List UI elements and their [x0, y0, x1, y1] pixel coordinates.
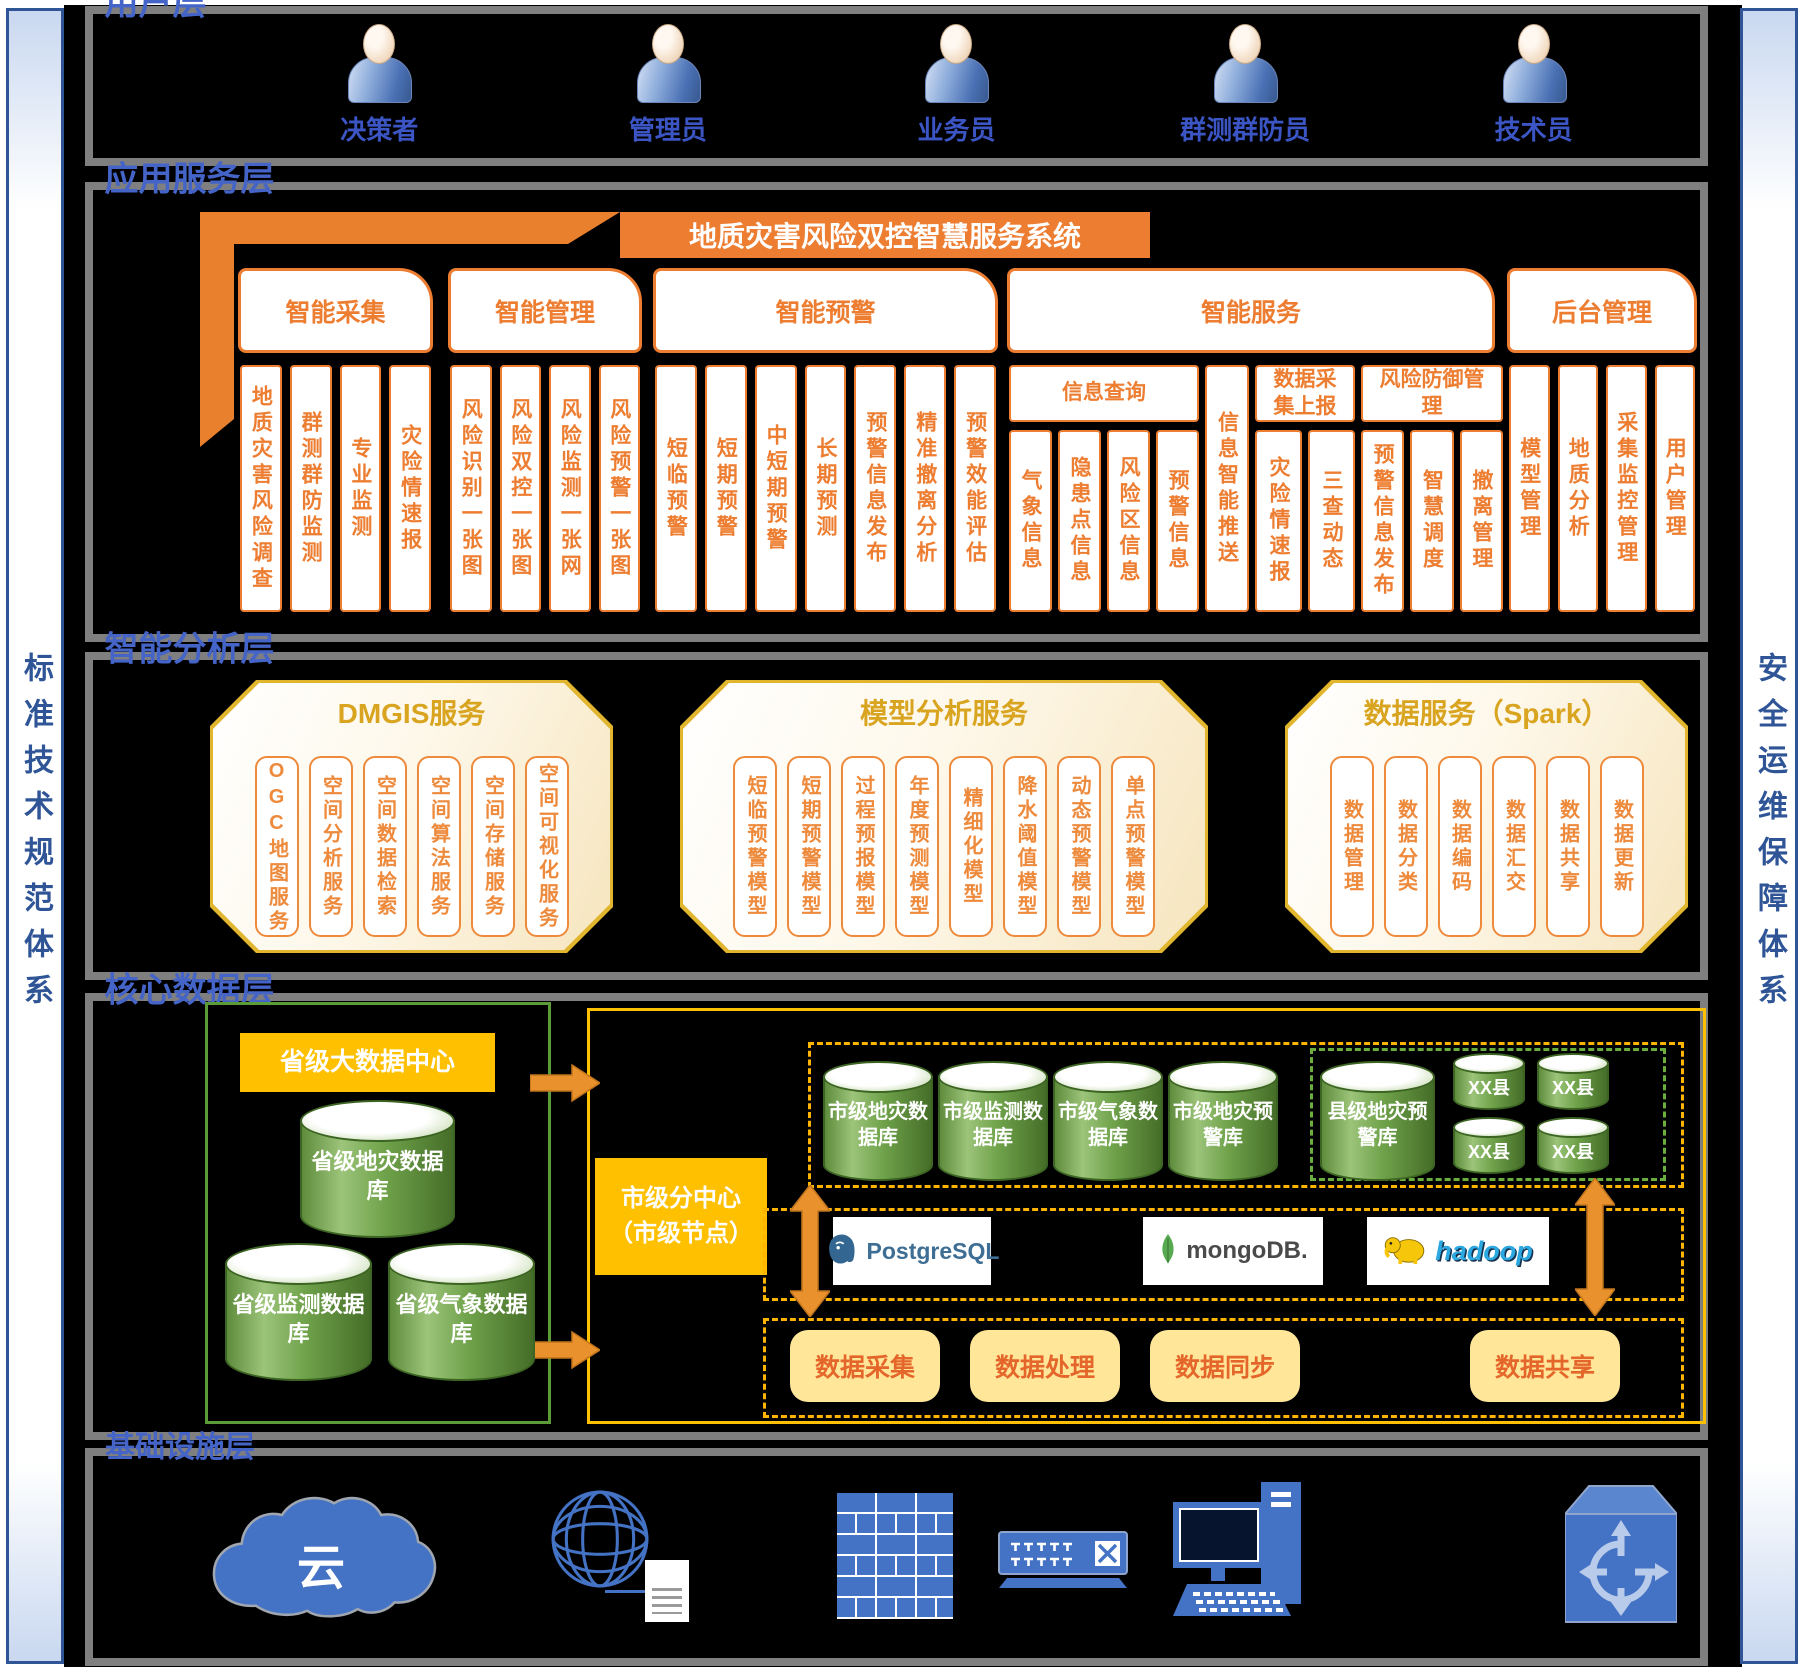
middleware-glyph-icon	[1158, 1231, 1178, 1272]
analysis-item-label: 数据分类	[1396, 799, 1416, 895]
person-icon	[1214, 24, 1276, 100]
group-items: 风险识别一张图风险双控一张图风险监测一张网风险预警一张图	[450, 365, 640, 612]
service-item-label: 地质灾害风险调查	[250, 385, 271, 593]
analysis-item-label: 数据更新	[1612, 799, 1632, 895]
service-subitem-label: 信息智能推送	[1217, 411, 1238, 567]
user-label: 技术员	[1495, 110, 1573, 147]
analysis-panel-2: 模型分析服务短临预警模型短期预警模型过程预报模型年度预测模型精细化模型降水阈值模…	[680, 680, 1208, 953]
service-item-label: 短期预警	[715, 437, 736, 541]
subgroup-items: 信息智能推送	[1205, 365, 1249, 612]
service-item: 风险识别一张图	[450, 365, 492, 612]
service-item-label: 预警信息发布	[865, 411, 886, 567]
service-item: 采集监控管理	[1606, 365, 1647, 612]
province-weather-db: 省级气象数据库	[388, 1243, 535, 1381]
person-icon	[637, 24, 699, 100]
service-subitem-label: 风险区信息	[1118, 456, 1139, 586]
service-item-label: 地质分析	[1567, 437, 1588, 541]
analysis-item: 数据汇交	[1492, 756, 1536, 937]
person-icon	[925, 24, 987, 100]
process-box-3: 数据同步	[1150, 1330, 1300, 1402]
user-1: 决策者	[304, 24, 454, 154]
service-item: 用户管理	[1655, 365, 1696, 612]
middleware-name: hadoop	[1435, 1236, 1532, 1267]
analysis-item: 数据编码	[1438, 756, 1482, 937]
user-label: 业务员	[917, 110, 995, 147]
user-layer-label: 用户层	[101, 0, 203, 28]
service-item-label: 风险监测一张网	[559, 398, 580, 580]
city-db-4: 市级地灾预警库	[1168, 1061, 1278, 1181]
service-item: 预警信息发布	[854, 365, 896, 612]
service-subitem: 信息智能推送	[1205, 365, 1249, 612]
infrastructure-layer-section: 基础设施层 云	[85, 1448, 1708, 1666]
analysis-item-label: 短临预警模型	[745, 775, 765, 919]
city-db-2: 市级监测数据库	[938, 1061, 1048, 1181]
sync-arrow-right	[1575, 1178, 1615, 1316]
city-db-1: 市级地灾数据库	[823, 1061, 933, 1181]
service-item: 专业监测	[340, 365, 382, 612]
panel-items: OGC地图服务空间分析服务空间数据检索空间算法服务空间存储服务空间可视化服务	[248, 756, 575, 937]
analysis-item: 动态预警模型	[1057, 756, 1101, 937]
analysis-item: 降水阈值模型	[1003, 756, 1047, 937]
service-item: 风险监测一张网	[549, 365, 591, 612]
city-db-4-label: 市级地灾预警库	[1170, 1099, 1276, 1151]
service-item: 精准撤离分析	[904, 365, 946, 612]
analysis-item: 数据管理	[1330, 756, 1374, 937]
service-item: 地质分析	[1558, 365, 1599, 612]
analysis-item-label: 短期预警模型	[799, 775, 819, 919]
province-geohazard-db-label: 省级地灾数据库	[302, 1148, 453, 1205]
county-warning-db-label: 县级地灾预警库	[1322, 1099, 1433, 1151]
panel-items: 数据管理数据分类数据编码数据汇交数据共享数据更新	[1323, 756, 1650, 937]
analysis-item-label: 空间数据检索	[375, 775, 395, 919]
analysis-item-label: 空间分析服务	[321, 775, 341, 919]
county-node-3: XX县	[1453, 1117, 1525, 1174]
infra-layer-label: 基础设施层	[101, 1431, 251, 1466]
analysis-item-label: 数据共享	[1558, 799, 1578, 895]
group-items: 地质灾害风险调查群测群防监测专业监测灾险情速报	[240, 365, 431, 612]
analysis-item: 空间存储服务	[471, 756, 515, 937]
service-subitem-label: 气象信息	[1020, 469, 1041, 573]
province-big-data-center: 省级大数据中心	[240, 1033, 495, 1092]
group-items: 模型管理地质分析采集监控管理用户管理	[1509, 365, 1695, 612]
service-item-label: 灾险情速报	[400, 424, 421, 554]
subgroup-header: 数据采集上报	[1255, 365, 1355, 422]
ribbon-horizontal	[200, 212, 620, 244]
service-item-label: 中短期预警	[765, 424, 786, 554]
middleware-name: mongoDB.	[1186, 1237, 1307, 1265]
service-item: 模型管理	[1509, 365, 1550, 612]
subgroup-header: 信息查询	[1009, 365, 1199, 422]
router-cube-icon	[1565, 1484, 1677, 1624]
panel-items: 短临预警模型短期预警模型过程预报模型年度预测模型精细化模型降水阈值模型动态预警模…	[718, 756, 1170, 937]
analysis-item-label: 空间存储服务	[483, 775, 503, 919]
city-subcenter-node: 市级分中心（市级节点）	[595, 1158, 767, 1275]
analysis-item: 短临预警模型	[733, 756, 777, 937]
analysis-item: 数据分类	[1384, 756, 1428, 937]
group-header-1: 智能采集	[238, 268, 433, 353]
analysis-item-label: 单点预警模型	[1123, 775, 1143, 919]
middleware-glyph-icon	[1383, 1233, 1427, 1270]
county-warning-db: 县级地灾预警库	[1320, 1061, 1435, 1181]
analysis-item: 短期预警模型	[787, 756, 831, 937]
analysis-layer-label: 智能分析层	[101, 631, 271, 674]
subgroup-items: 预警信息发布智慧调度撤离管理	[1361, 430, 1503, 612]
city-db-3: 市级气象数据库	[1053, 1061, 1163, 1181]
cloud-label: 云	[297, 1528, 345, 1598]
person-icon	[1503, 24, 1565, 100]
service-subitem: 灾险情速报	[1255, 430, 1302, 612]
analysis-item-label: 动态预警模型	[1069, 775, 1089, 919]
county-node-2: XX县	[1537, 1053, 1609, 1110]
person-icon	[348, 24, 410, 100]
document-icon	[645, 1560, 689, 1622]
user-2: 管理员	[593, 24, 743, 154]
service-subitem: 撤离管理	[1460, 430, 1503, 612]
service-subitem: 三查动态	[1308, 430, 1355, 612]
analysis-item: 空间分析服务	[309, 756, 353, 937]
service-subitem-label: 智慧调度	[1421, 469, 1442, 573]
analysis-item-label: OGC地图服务	[267, 760, 287, 934]
service-subitem: 气象信息	[1009, 430, 1052, 612]
service-item-label: 群测群防监测	[300, 411, 321, 567]
province-weather-db-label: 省级气象数据库	[390, 1291, 533, 1348]
analysis-item-label: 降水阈值模型	[1015, 775, 1035, 919]
analysis-item-label: 精细化模型	[961, 787, 981, 907]
service-item-label: 采集监控管理	[1616, 411, 1637, 567]
middleware-glyph-icon	[825, 1232, 859, 1271]
analysis-item-label: 数据汇交	[1504, 799, 1524, 895]
user-label: 群测群防员	[1180, 110, 1310, 147]
city-db-2-label: 市级监测数据库	[940, 1099, 1046, 1151]
subgroup-items: 灾险情速报三查动态	[1255, 430, 1355, 612]
analysis-item: 空间算法服务	[417, 756, 461, 937]
middleware-logo-2: mongoDB.	[1143, 1217, 1323, 1285]
left-rail-label: 标准技术规范体系	[13, 652, 57, 1020]
service-item: 风险预警一张图	[599, 365, 641, 612]
subgroup-header: 风险防御管理	[1361, 365, 1503, 422]
app-service-layer-section: 应用服务层 地质灾害风险双控智慧服务系统 智能采集地质灾害风险调查群测群防监测专…	[85, 182, 1708, 642]
panel-title: 模型分析服务	[680, 692, 1208, 732]
service-subitem-label: 撤离管理	[1471, 469, 1492, 573]
service-item-label: 专业监测	[350, 437, 371, 541]
user-label: 决策者	[340, 110, 418, 147]
province-monitor-db: 省级监测数据库	[225, 1243, 372, 1381]
service-item: 地质灾害风险调查	[240, 365, 282, 612]
analysis-item-label: 过程预报模型	[853, 775, 873, 919]
app-layer-label: 应用服务层	[101, 161, 271, 204]
service-subitem: 预警信息	[1156, 430, 1199, 612]
service-item: 预警效能评估	[954, 365, 996, 612]
service-subitem: 智慧调度	[1410, 430, 1453, 612]
service-item-label: 风险预警一张图	[609, 398, 630, 580]
county-node-2-label: XX县	[1539, 1077, 1607, 1100]
county-node-4: XX县	[1537, 1117, 1609, 1174]
service-subitem: 预警信息发布	[1361, 430, 1404, 612]
analysis-item: 数据更新	[1600, 756, 1644, 937]
network-switch-icon	[997, 1520, 1129, 1592]
globe-icon	[549, 1488, 651, 1590]
province-to-city-arrow-bottom	[530, 1330, 600, 1370]
service-subitem-label: 预警信息	[1167, 469, 1188, 573]
group-header-3: 智能预警	[653, 268, 998, 353]
county-node-3-label: XX县	[1455, 1141, 1523, 1164]
middleware-logo-3: hadoop	[1367, 1217, 1549, 1285]
province-geohazard-db: 省级地灾数据库	[300, 1100, 455, 1238]
county-node-4-label: XX县	[1539, 1141, 1607, 1164]
service-item: 风险双控一张图	[500, 365, 542, 612]
analysis-panel-3: 数据服务（Spark）数据管理数据分类数据编码数据汇交数据共享数据更新	[1285, 680, 1688, 953]
firewall-icon	[837, 1493, 953, 1619]
ribbon-vertical	[200, 212, 234, 447]
middleware-logo-1: PostgreSQL	[833, 1217, 991, 1285]
service-item: 长期预测	[805, 365, 847, 612]
subgroup-items: 气象信息隐患点信息风险区信息预警信息	[1009, 430, 1199, 612]
right-rail-label: 安全运维保障体系	[1747, 652, 1791, 1020]
service-item-label: 用户管理	[1664, 437, 1685, 541]
service-subitem-label: 隐患点信息	[1069, 456, 1090, 586]
service-subitem: 风险区信息	[1107, 430, 1150, 612]
panel-title: DMGIS服务	[210, 692, 613, 732]
analysis-item: 空间可视化服务	[525, 756, 569, 937]
analysis-panel-1: DMGIS服务OGC地图服务空间分析服务空间数据检索空间算法服务空间存储服务空间…	[210, 680, 613, 953]
province-monitor-db-label: 省级监测数据库	[227, 1291, 370, 1348]
service-subitem-label: 预警信息发布	[1372, 443, 1393, 599]
service-item: 中短期预警	[755, 365, 797, 612]
analysis-item: 精细化模型	[949, 756, 993, 937]
system-title-banner: 地质灾害风险双控智慧服务系统	[620, 212, 1150, 258]
user-3: 业务员	[881, 24, 1031, 154]
service-item: 短期预警	[705, 365, 747, 612]
service-item-label: 风险识别一张图	[460, 398, 481, 580]
middleware-name: PostgreSQL	[867, 1238, 1000, 1265]
core-data-layer-section: 核心数据层 省级大数据中心 市级分中心（市级节点） 省级地灾数据库省级监测数据库…	[85, 993, 1708, 1440]
county-node-1-label: XX县	[1455, 1077, 1523, 1100]
service-item-label: 精准撤离分析	[915, 411, 936, 567]
service-item-label: 短临预警	[665, 437, 686, 541]
workstation-icon	[1173, 1482, 1303, 1634]
service-subitem-label: 灾险情速报	[1268, 456, 1289, 586]
city-db-1-label: 市级地灾数据库	[825, 1099, 931, 1151]
service-item-label: 风险双控一张图	[510, 398, 531, 580]
users-row: 决策者管理员业务员群测群防员技术员	[235, 24, 1678, 154]
service-item-label: 预警效能评估	[965, 411, 986, 567]
process-box-4: 数据共享	[1470, 1330, 1620, 1402]
analysis-layer-section: 智能分析层 DMGIS服务OGC地图服务空间分析服务空间数据检索空间算法服务空间…	[85, 652, 1708, 980]
service-subitem: 隐患点信息	[1058, 430, 1101, 612]
user-label: 管理员	[629, 110, 707, 147]
analysis-item: OGC地图服务	[255, 756, 299, 937]
analysis-item: 空间数据检索	[363, 756, 407, 937]
analysis-item: 过程预报模型	[841, 756, 885, 937]
province-to-city-arrow-top	[530, 1063, 600, 1103]
panel-title: 数据服务（Spark）	[1285, 692, 1688, 732]
process-box-2: 数据处理	[970, 1330, 1120, 1402]
analysis-item: 单点预警模型	[1111, 756, 1155, 937]
analysis-item-label: 空间可视化服务	[537, 763, 557, 931]
service-item: 群测群防监测	[290, 365, 332, 612]
process-box-1: 数据采集	[790, 1330, 940, 1402]
analysis-item: 数据共享	[1546, 756, 1590, 937]
user-layer-section: 用户层 决策者管理员业务员群测群防员技术员	[85, 6, 1708, 166]
right-rail-security: 安全运维保障体系	[1740, 8, 1798, 1664]
city-db-3-label: 市级气象数据库	[1055, 1099, 1161, 1151]
group-header-5: 后台管理	[1507, 268, 1697, 353]
service-item: 灾险情速报	[389, 365, 431, 612]
group-header-2: 智能管理	[448, 268, 642, 353]
analysis-item-label: 数据编码	[1450, 799, 1470, 895]
analysis-item: 年度预测模型	[895, 756, 939, 937]
analysis-item-label: 数据管理	[1342, 799, 1362, 895]
county-node-1: XX县	[1453, 1053, 1525, 1110]
service-item-label: 模型管理	[1519, 437, 1540, 541]
left-rail-standards: 标准技术规范体系	[6, 8, 64, 1664]
service-item: 短临预警	[655, 365, 697, 612]
group-header-4: 智能服务	[1007, 268, 1495, 353]
user-4: 群测群防员	[1170, 24, 1320, 154]
analysis-item-label: 空间算法服务	[429, 775, 449, 919]
user-5: 技术员	[1459, 24, 1609, 154]
analysis-item-label: 年度预测模型	[907, 775, 927, 919]
service-subitem-label: 三查动态	[1321, 469, 1342, 573]
group-items: 短临预警短期预警中短期预警长期预测预警信息发布精准撤离分析预警效能评估	[655, 365, 996, 612]
service-item-label: 长期预测	[815, 437, 836, 541]
